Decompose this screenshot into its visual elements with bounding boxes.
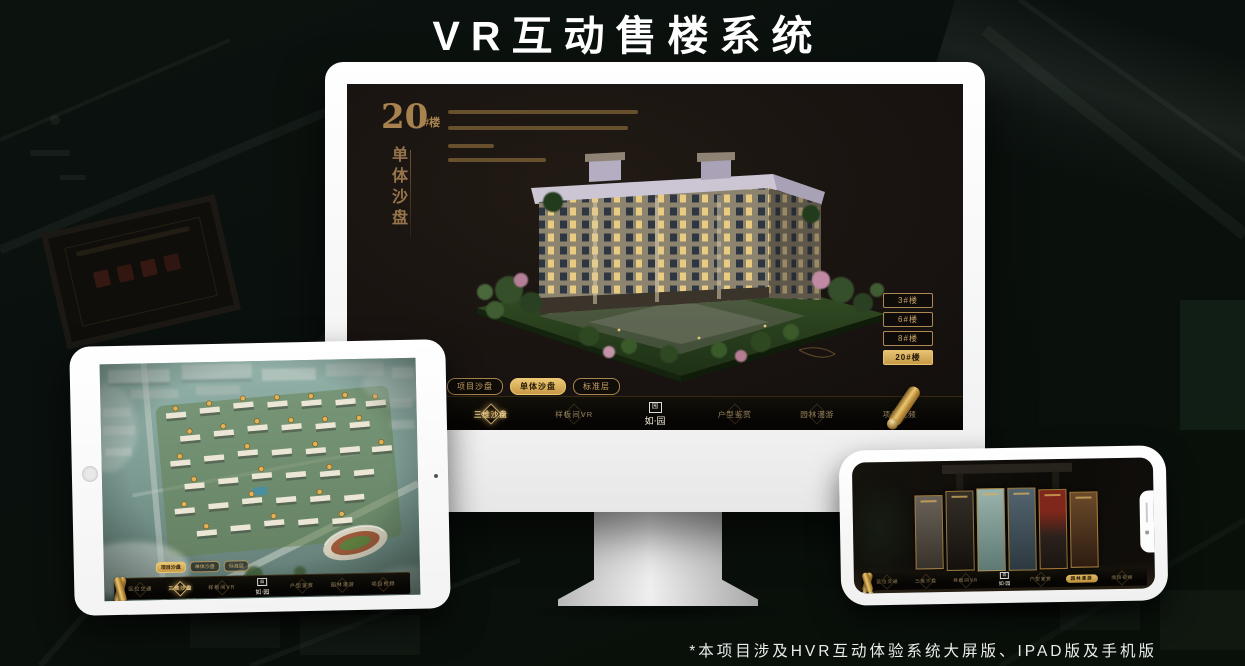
floor-button-list: 3#楼6#楼8#楼20#楼 bbox=[883, 293, 933, 365]
nav-item[interactable]: 户型鉴赏 bbox=[288, 579, 316, 593]
tablet-camera-icon bbox=[434, 474, 438, 478]
floor-button[interactable]: 6#楼 bbox=[883, 312, 933, 327]
nav-item[interactable]: 三维沙盘 bbox=[166, 581, 194, 595]
nav-item[interactable]: 样板间VR bbox=[951, 574, 980, 587]
brand-logo: 园 如·园 bbox=[249, 577, 275, 596]
monitor-tab-row: 项目沙盘单体沙盘标准层 bbox=[447, 378, 620, 395]
floor-button[interactable]: 3#楼 bbox=[883, 293, 933, 308]
brand-logo: 园 如·园 bbox=[639, 402, 672, 427]
floor-button[interactable]: 8#楼 bbox=[883, 331, 933, 346]
tab[interactable]: 单体沙盘 bbox=[190, 561, 220, 573]
nav-group-left: 区位交通三维沙盘样板间VR bbox=[862, 574, 993, 588]
gallery-panel[interactable] bbox=[1069, 491, 1098, 567]
brand-seal-icon: 园 bbox=[649, 402, 662, 413]
phone-screen: 区位交通三维沙盘样板间VR 园 如·园 户型鉴赏园林漫游项目视频 bbox=[852, 457, 1155, 593]
unit-name-vertical: 单体沙盘 bbox=[385, 146, 409, 230]
brand-seal-icon: 园 bbox=[1000, 572, 1009, 579]
page: VR互动售楼系统 20 #楼 单体沙盘 bbox=[0, 0, 1245, 666]
nav-item[interactable]: 样板间VR bbox=[206, 581, 237, 595]
phone-notch bbox=[1139, 490, 1155, 552]
nav-item[interactable]: 区位交通 bbox=[126, 582, 154, 596]
brand-name: 如·园 bbox=[255, 586, 269, 595]
tab[interactable]: 标准层 bbox=[224, 560, 249, 572]
nav-group-right: 户型鉴赏园林漫游项目视频 bbox=[275, 577, 410, 593]
gallery-panel[interactable] bbox=[1038, 489, 1067, 569]
nav-item[interactable]: 样板间VR bbox=[553, 406, 595, 423]
floor-button[interactable]: 20#楼 bbox=[883, 350, 933, 365]
aerial-sandbox-view[interactable] bbox=[100, 358, 421, 602]
brand-logo: 园 如·园 bbox=[993, 572, 1017, 587]
description-line bbox=[448, 110, 638, 114]
brand-name: 如·园 bbox=[999, 580, 1011, 587]
nav-item[interactable]: 户型鉴赏 bbox=[1028, 573, 1054, 585]
nav-group-right: 户型鉴赏园林漫游项目视频 bbox=[1016, 571, 1147, 585]
nav-item[interactable]: 园林漫游 bbox=[798, 406, 836, 423]
nav-item[interactable]: 园林漫游 bbox=[329, 578, 357, 592]
brand-name: 如·园 bbox=[645, 414, 666, 427]
nav-item[interactable]: 三维沙盘 bbox=[472, 406, 510, 423]
unit-title-divider bbox=[410, 150, 411, 238]
nav-group-right: 户型鉴赏园林漫游项目视频 bbox=[671, 406, 963, 423]
description-line bbox=[448, 126, 628, 130]
page-title: VR互动售楼系统 bbox=[0, 2, 1245, 62]
nav-group-left: 区位交通三维沙盘样板间VR bbox=[114, 580, 249, 596]
gallery-panel[interactable] bbox=[914, 495, 943, 569]
building-3d-model[interactable] bbox=[469, 140, 889, 385]
gallery-panel[interactable] bbox=[1007, 487, 1036, 570]
unit-number: 20 bbox=[381, 100, 428, 134]
nav-item[interactable]: 园林漫游 bbox=[1066, 574, 1098, 583]
tab[interactable]: 项目沙盘 bbox=[447, 378, 503, 395]
nav-item[interactable]: 三维沙盘 bbox=[913, 575, 939, 587]
nav-item[interactable]: 区位交通 bbox=[874, 575, 900, 587]
phone-speaker-icon bbox=[1146, 502, 1148, 522]
tab[interactable]: 单体沙盘 bbox=[510, 378, 566, 395]
tab[interactable]: 项目沙盘 bbox=[156, 562, 186, 574]
nav-item[interactable]: 项目视频 bbox=[1109, 571, 1135, 583]
nav-item[interactable]: 户型鉴赏 bbox=[716, 406, 754, 423]
tablet-screen: 项目沙盘单体沙盘标准层 区位交通三维沙盘样板间VR 园 如·园 户型鉴赏园林漫游… bbox=[100, 358, 421, 602]
tablet-tab-row: 项目沙盘单体沙盘标准层 bbox=[156, 560, 249, 573]
footnote: *本项目涉及HVR互动体验系统大屏版、IPAD版及手机版 bbox=[689, 639, 1157, 661]
gallery-panel[interactable] bbox=[945, 491, 974, 571]
gallery-panel[interactable] bbox=[976, 488, 1005, 571]
tab[interactable]: 标准层 bbox=[573, 378, 620, 395]
phone-camera-icon bbox=[1145, 530, 1149, 534]
brand-seal-icon: 园 bbox=[257, 577, 267, 585]
unit-number-suffix: #楼 bbox=[423, 114, 440, 130]
nav-item[interactable]: 项目视频 bbox=[369, 577, 397, 591]
